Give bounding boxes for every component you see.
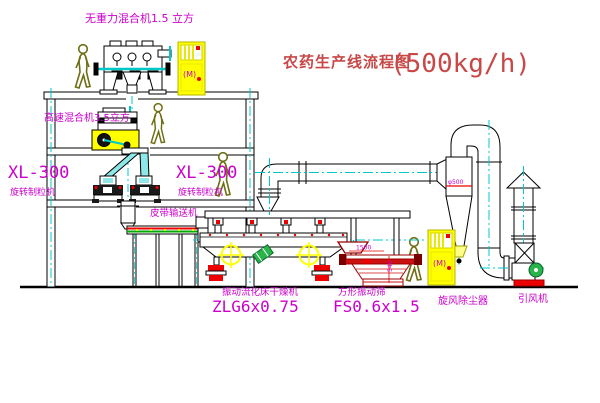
granulator-right-model: XL-300 bbox=[176, 163, 237, 183]
dryer-foot-right bbox=[312, 257, 332, 281]
cabinet-top-marking: (M) bbox=[183, 70, 196, 79]
process-flow-drawing: (M) bbox=[0, 0, 600, 403]
fan-name-label: 引风机 bbox=[518, 292, 548, 305]
cabinet-bottom-marking: (M) bbox=[433, 259, 446, 268]
belt-conveyor-label: 皮带输送机 bbox=[150, 207, 198, 219]
cyclone-name-label: 旋风除尘器 bbox=[438, 294, 488, 307]
belt-conveyor bbox=[127, 226, 201, 287]
title-capacity: (500kg/h) bbox=[390, 49, 531, 79]
exhaust-duct bbox=[255, 158, 447, 215]
cyclone-dimension-label: φ500 bbox=[448, 179, 464, 186]
high-speed-mixer-label: 高速混合机3.5立方 bbox=[44, 111, 130, 124]
screen-height-dimension: 540 bbox=[387, 260, 394, 272]
screen-width-dimension: 1500 bbox=[356, 245, 371, 252]
granulator-right bbox=[129, 176, 161, 203]
induced-draft-fan bbox=[509, 243, 544, 286]
gravity-mixer bbox=[94, 41, 171, 112]
control-cabinet-top: (M) bbox=[178, 42, 205, 95]
dryer-model-label: ZLG6x0.75 bbox=[212, 297, 299, 316]
granulator-right-name: 旋转制粒机 bbox=[178, 186, 223, 198]
granulator-left-name: 旋转制粒机 bbox=[10, 186, 55, 198]
person-figure-top bbox=[76, 45, 91, 88]
person-figure-floor2 bbox=[151, 104, 164, 144]
control-cabinet-bottom: (M) bbox=[428, 230, 455, 285]
gravity-mixer-label: 无重力混合机1.5 立方 bbox=[85, 11, 194, 25]
flow-diagram-canvas: (M) bbox=[0, 0, 600, 403]
granulator-left-model: XL-300 bbox=[8, 163, 69, 183]
screen-model-label: FS0.6x1.5 bbox=[333, 297, 420, 316]
granulator-left bbox=[92, 176, 124, 203]
